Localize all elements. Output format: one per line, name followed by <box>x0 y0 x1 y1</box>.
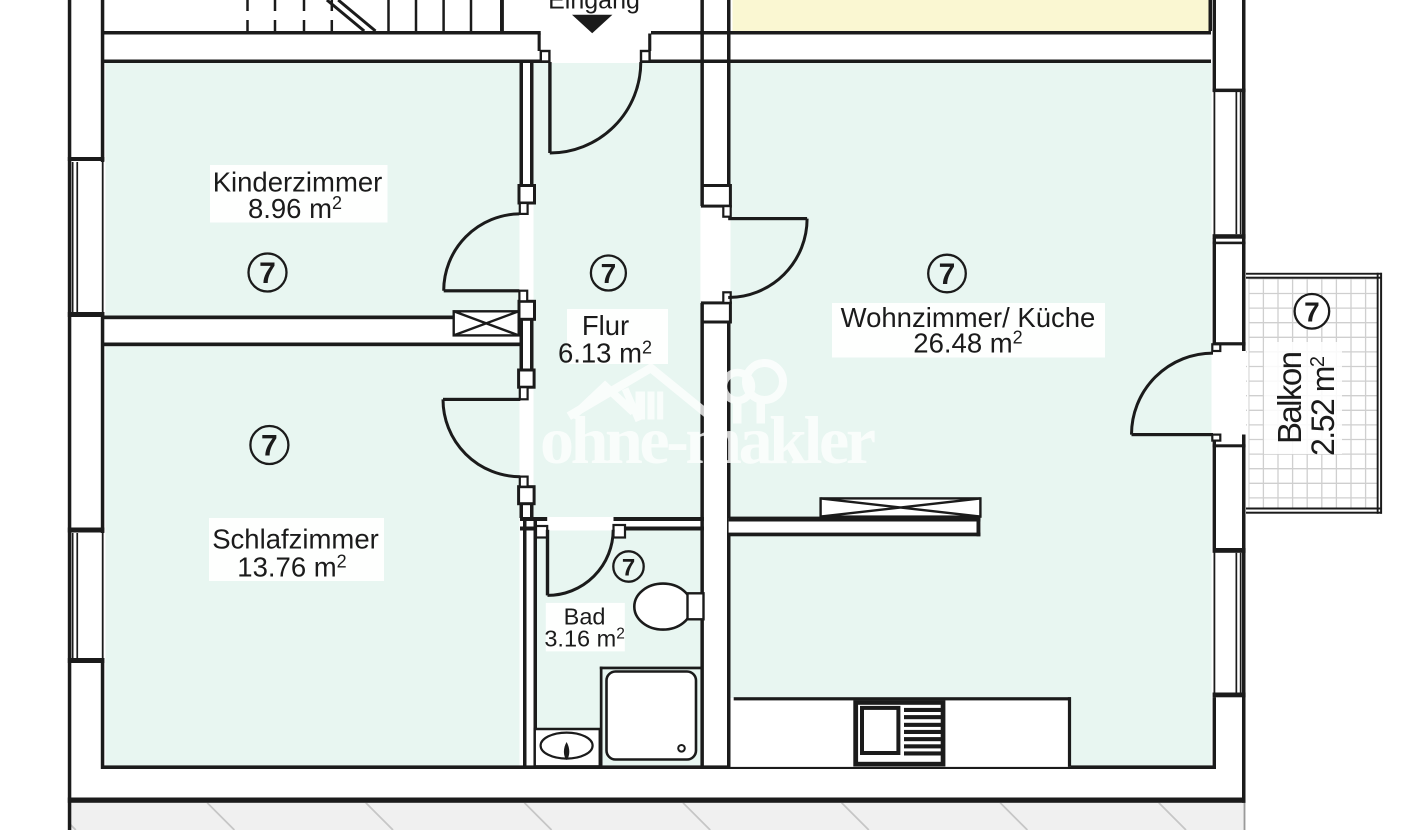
svg-text:8.96 m2: 8.96 m2 <box>248 193 342 224</box>
svg-text:Balkon: Balkon <box>1271 351 1308 444</box>
svg-text:ohne-makler: ohne-makler <box>540 402 876 478</box>
svg-text:Schlafzimmer: Schlafzimmer <box>212 524 379 555</box>
svg-text:6.13 m2: 6.13 m2 <box>558 338 652 369</box>
svg-text:3.16 m2: 3.16 m2 <box>544 626 624 652</box>
svg-text:26.48 m2: 26.48 m2 <box>913 328 1022 359</box>
svg-text:7: 7 <box>259 257 276 290</box>
svg-text:13.76 m2: 13.76 m2 <box>237 552 346 583</box>
svg-text:2.52 m2: 2.52 m2 <box>1305 356 1341 456</box>
svg-text:Eingang: Eingang <box>548 0 640 15</box>
svg-text:7: 7 <box>1304 297 1320 328</box>
svg-text:7: 7 <box>261 430 278 463</box>
svg-text:7: 7 <box>622 555 635 582</box>
svg-text:7: 7 <box>939 258 956 291</box>
svg-text:Flur: Flur <box>582 310 629 341</box>
svg-text:7: 7 <box>601 258 617 289</box>
